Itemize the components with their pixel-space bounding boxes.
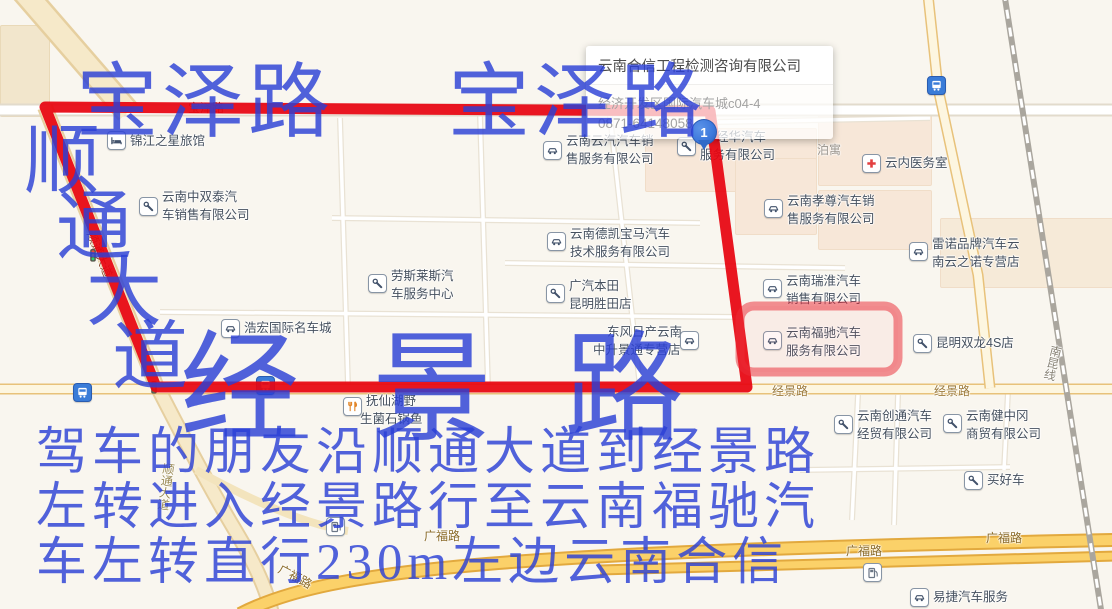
wrench-icon[interactable] [546, 284, 565, 303]
annotation-shuntong-char: 顺 [24, 124, 100, 200]
poi-label: 南云之诺专营店 [932, 256, 1020, 269]
annotation-directions-line1: 驾车的朋友沿顺通大道到经景路 [36, 428, 820, 479]
wrench-icon[interactable] [368, 274, 387, 293]
car-icon[interactable] [763, 279, 782, 298]
annotation-directions-line3: 车左转直行230m左边云南合信 [36, 538, 788, 589]
poi-label: 技术服务有限公司 [570, 246, 670, 259]
poi-label: 销售有限公司 [786, 293, 861, 306]
road-label: 广福路 [276, 563, 313, 591]
wrench-icon[interactable] [913, 334, 932, 353]
road-label: 泊寓 [817, 144, 841, 156]
popup-title: 云南合信工程检测咨询有限公司 [586, 46, 833, 84]
poi-label: 云南创通汽车 [857, 410, 932, 423]
car-icon[interactable] [221, 319, 240, 338]
cross-icon[interactable] [862, 154, 881, 173]
road-label: 广福路 [846, 545, 882, 557]
gas-icon[interactable] [863, 563, 882, 582]
poi-label: 经贸有限公司 [857, 428, 932, 441]
poi-label: 浩宏国际名车城 [244, 322, 332, 335]
car-icon[interactable] [763, 331, 782, 350]
bus-icon[interactable] [256, 376, 275, 395]
road-label: 顺通大道 [156, 462, 175, 511]
road-label: 广福路 [986, 532, 1022, 544]
hotel-icon[interactable] [107, 131, 126, 150]
map-pin-1[interactable]: 1 [691, 119, 717, 145]
poi-label: 云南德凯宝马汽车 [570, 228, 670, 241]
poi-label: 车销售有限公司 [162, 209, 250, 222]
poi-label: 易捷汽车服务 [933, 591, 1008, 604]
poi-label: 服务有限公司 [786, 345, 861, 358]
wrench-icon[interactable] [943, 414, 962, 433]
wrench-icon[interactable] [834, 415, 853, 434]
wrench-icon[interactable] [139, 197, 158, 216]
poi-label: 云南孝尊汽车销 [787, 195, 875, 208]
map-block [940, 218, 1112, 288]
car-icon[interactable] [547, 232, 566, 251]
poi-label: 商贸有限公司 [966, 428, 1041, 441]
poi-label: 云南瑞淮汽车 [786, 275, 861, 288]
poi-label: 锦江之星旅馆 [130, 135, 205, 148]
bus-icon[interactable] [73, 383, 92, 402]
road-label: 南昆线 [1042, 344, 1062, 382]
car-icon[interactable] [543, 141, 562, 160]
poi-label: 雷诺品牌汽车云 [932, 238, 1020, 251]
poi-label: 昆明双龙4S店 [936, 337, 1014, 350]
signal-icon[interactable] [88, 247, 97, 264]
poi-label: 广汽本田 [569, 280, 619, 293]
poi-label: 服务有限公司 [700, 149, 775, 162]
poi-label: 云南健中冈 [966, 410, 1029, 423]
poi-label: 云南福驰汽车 [786, 327, 861, 340]
road-label: 经景路 [934, 385, 970, 397]
car-icon[interactable] [910, 588, 929, 607]
poi-label: 东风日产云南 [607, 326, 682, 339]
road-label: 经景路 [772, 385, 808, 397]
food-icon[interactable] [343, 397, 362, 416]
pin-number: 1 [700, 125, 707, 140]
poi-label: 买好车 [987, 474, 1025, 487]
poi-label: 抚仙湖野 [366, 395, 416, 408]
poi-label: 中升景通专营店 [593, 344, 681, 357]
car-icon[interactable] [909, 242, 928, 261]
car-icon[interactable] [680, 331, 699, 350]
gas-icon[interactable] [326, 517, 345, 536]
signal-icon[interactable] [149, 379, 158, 396]
poi-label: 劳斯莱斯汽 [391, 270, 454, 283]
poi-label: 售服务有限公司 [787, 213, 875, 226]
poi-label: 生菌石锅鱼 [360, 413, 423, 426]
bus-icon[interactable] [927, 76, 946, 95]
map-canvas[interactable]: 宝泽路经景路经景路广福路广福路广福路广福路南昆线顺通大道顺通大道泊寓锦江之星旅馆… [0, 0, 1112, 609]
annotation-directions-line2: 左转进入经景路行至云南福驰汽 [36, 483, 820, 534]
poi-label: 云内医务室 [885, 157, 948, 170]
poi-label: 云南中双泰汽 [162, 191, 237, 204]
map-block [0, 25, 50, 117]
poi-label: 昆明胜田店 [569, 298, 632, 311]
wrench-icon[interactable] [964, 471, 983, 490]
car-icon[interactable] [764, 199, 783, 218]
road-label: 广福路 [424, 530, 460, 542]
poi-label: 车服务中心 [391, 288, 454, 301]
road-label: 宝泽路 [188, 102, 224, 114]
popup-address: 经济开发区国际汽车城c04-4 [598, 91, 821, 116]
poi-label: 售服务有限公司 [566, 153, 654, 166]
